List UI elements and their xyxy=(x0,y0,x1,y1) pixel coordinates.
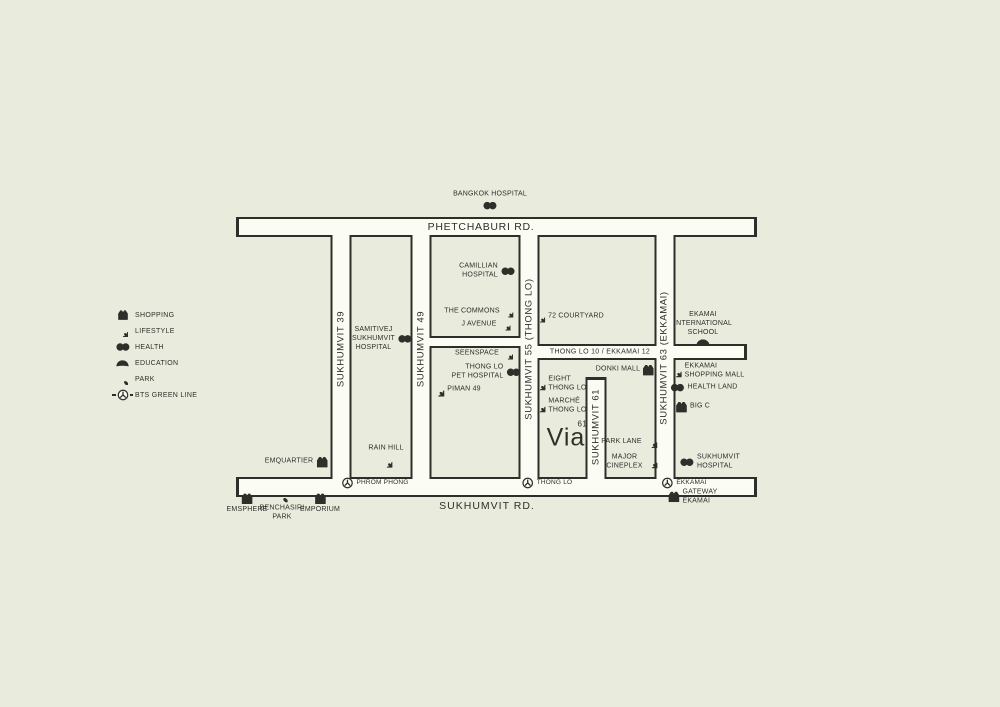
bts-icon xyxy=(112,389,133,401)
via61-logo: Via 61 xyxy=(547,424,586,453)
poi-donki-mall: DONKI MALL xyxy=(596,365,654,376)
poi-label: 72 COURTYARD xyxy=(548,313,604,322)
poi-thonglo-pet-hospital: THONG LO PET HOSPITAL xyxy=(452,363,521,381)
bts-icon xyxy=(522,477,534,489)
shopping-icon xyxy=(316,457,327,468)
poi-label: EMQUARTIER xyxy=(265,458,314,467)
poi-benchasiri-park: BENCHASIRI PARK xyxy=(260,490,305,522)
poi-emporium: EMPORIUM xyxy=(300,493,340,515)
poi-bangkok-hospital: BANGKOK HOSPITAL xyxy=(453,191,527,210)
health-icon xyxy=(506,368,520,376)
poi-ekamai-international-school: EKAMAI INTERNATIONAL SCHOOL xyxy=(674,311,732,347)
legend-item-health: HEALTH xyxy=(112,339,197,355)
legend-item-lifestyle: LIFESTYLE xyxy=(112,323,197,339)
health-icon xyxy=(671,384,685,392)
road-label-phetchaburi: PHETCHABURI RD. xyxy=(428,221,535,233)
poi-label: HEALTH LAND xyxy=(688,384,738,393)
legend-label: SHOPPING xyxy=(135,312,174,319)
lifestyle-icon xyxy=(533,378,545,390)
legend-item-shopping: SHOPPING xyxy=(112,307,197,323)
lifestyle-icon xyxy=(646,456,658,468)
poi-label: EMPORIUM xyxy=(300,506,340,515)
poi-label: MAJOR CINEPLEX xyxy=(606,453,642,471)
poi-label: EIGHT THONG LO xyxy=(548,375,586,393)
map-canvas: PHETCHABURI RD. SUKHUMVIT RD. SUKHUMVIT … xyxy=(0,0,1000,707)
poi-label: RAIN HILL xyxy=(368,445,403,454)
bts-icon xyxy=(661,477,673,489)
poi-label: MARCHÉ THONG LO xyxy=(548,397,586,415)
shopping-icon xyxy=(643,365,654,376)
bts-station-ekkamai: EKKAMAI xyxy=(661,477,706,489)
poi-label: SAMITIVEJ SUKHUMVIT HOSPITAL xyxy=(352,326,395,352)
road-label-sukhumvit-61: SUKHUMVIT 61 xyxy=(591,389,602,465)
legend-item-park: PARK xyxy=(112,371,197,387)
road-label-sukhumvit-63: SUKHUMVIT 63 (EKKAMAI) xyxy=(659,291,670,424)
road-label-thonglo10: THONG LO 10 / EKKAMAI 12 xyxy=(550,349,650,356)
poi-major-cineplex: MAJOR CINEPLEX xyxy=(606,453,657,471)
shopping-icon xyxy=(314,493,325,504)
poi-emquartier: EMQUARTIER xyxy=(265,457,328,468)
legend-label: PARK xyxy=(135,376,155,383)
legend-label: LIFESTYLE xyxy=(135,328,175,335)
lifestyle-icon xyxy=(503,307,514,318)
poi-piman-49: PIMAN 49 xyxy=(431,384,481,397)
poi-ekkamai-shopping-mall: EKKAMAI SHOPPING MALL xyxy=(670,362,745,380)
poi-label: THONG LO PET HOSPITAL xyxy=(452,363,504,381)
via-logo-sup: 61 xyxy=(577,420,587,429)
shopping-icon xyxy=(676,402,687,413)
station-label: THONG LO xyxy=(537,479,573,487)
lifestyle-icon xyxy=(499,320,510,331)
legend-label: EDUCATION xyxy=(135,360,178,367)
health-icon xyxy=(398,335,412,343)
education-icon xyxy=(696,339,710,347)
poi-park-lane: PARK LANE xyxy=(601,436,657,448)
road-label-sukhumvit: SUKHUMVIT RD. xyxy=(439,500,535,512)
poi-label: BANGKOK HOSPITAL xyxy=(453,191,527,200)
poi-label: DONKI MALL xyxy=(596,366,640,375)
education-icon xyxy=(112,360,133,367)
lifestyle-icon xyxy=(380,455,392,467)
park-icon xyxy=(112,374,133,385)
poi-label: CAMILLIAN HOSPITAL xyxy=(459,262,498,280)
poi-health-land: HEALTH LAND xyxy=(671,384,738,393)
poi-label: BIG C xyxy=(690,403,710,412)
road-label-sukhumvit-49: SUKHUMVIT 49 xyxy=(416,311,427,387)
lifestyle-icon xyxy=(112,326,133,337)
poi-seenspace: SEENSPACE xyxy=(455,349,513,360)
lifestyle-icon xyxy=(533,400,545,412)
poi-label: SUKHUMVIT HOSPITAL xyxy=(697,453,740,471)
lifestyle-icon xyxy=(502,349,513,360)
poi-label: EKKAMAI SHOPPING MALL xyxy=(685,362,745,380)
shopping-icon xyxy=(668,492,679,503)
lifestyle-icon xyxy=(534,312,545,323)
road-label-sukhumvit-39: SUKHUMVIT 39 xyxy=(336,311,347,387)
poi-label: PIMAN 49 xyxy=(447,386,481,395)
legend-item-bts-green-line: BTS GREEN LINE xyxy=(112,387,197,403)
bts-station-phrom-phong: PHROM PHONG xyxy=(341,477,408,489)
poi-eight-thonglo: EIGHT THONG LO xyxy=(533,375,586,393)
poi-the-commons: THE COMMONS xyxy=(444,307,513,318)
poi-label: THE COMMONS xyxy=(444,308,499,317)
poi-label: PARK LANE xyxy=(601,438,642,447)
legend-item-education: EDUCATION xyxy=(112,355,197,371)
poi-gateway-ekamai: GATEWAY EKAMAI xyxy=(668,488,717,506)
poi-samitivej-sukhumvit-hospital: SAMITIVEJ SUKHUMVIT HOSPITAL xyxy=(352,326,412,352)
lifestyle-icon xyxy=(431,384,444,397)
legend-label: BTS GREEN LINE xyxy=(135,392,197,399)
poi-rain-hill: RAIN HILL xyxy=(368,445,403,468)
health-icon xyxy=(483,201,497,209)
poi-label: EKAMAI INTERNATIONAL SCHOOL xyxy=(674,311,732,337)
station-label: EKKAMAI xyxy=(676,479,706,487)
poi-72-courtyard: 72 COURTYARD xyxy=(534,312,604,323)
poi-sukhumvit-hospital: SUKHUMVIT HOSPITAL xyxy=(680,453,740,471)
poi-camillian-hospital: CAMILLIAN HOSPITAL xyxy=(459,262,515,280)
shopping-icon xyxy=(241,493,252,504)
legend-label: HEALTH xyxy=(135,344,164,351)
poi-label: SEENSPACE xyxy=(455,350,499,359)
health-icon xyxy=(501,267,515,275)
poi-label: BENCHASIRI PARK xyxy=(260,504,305,522)
poi-big-c: BIG C xyxy=(676,402,710,413)
poi-j-avenue: J AVENUE xyxy=(462,320,511,331)
legend: SHOPPING LIFESTYLE HEALTH EDUCATION PARK… xyxy=(112,307,197,403)
station-label: PHROM PHONG xyxy=(356,479,408,487)
poi-marche-thonglo: MARCHÉ THONG LO xyxy=(533,397,586,415)
health-icon xyxy=(680,458,694,466)
bts-icon xyxy=(341,477,353,489)
lifestyle-icon xyxy=(670,365,682,377)
shopping-icon xyxy=(112,310,133,320)
park-icon xyxy=(276,490,288,502)
poi-label: GATEWAY EKAMAI xyxy=(682,488,717,506)
lifestyle-icon xyxy=(645,436,657,448)
bts-station-thong-lo: THONG LO xyxy=(522,477,573,489)
poi-label: J AVENUE xyxy=(462,321,497,330)
health-icon xyxy=(112,343,133,351)
